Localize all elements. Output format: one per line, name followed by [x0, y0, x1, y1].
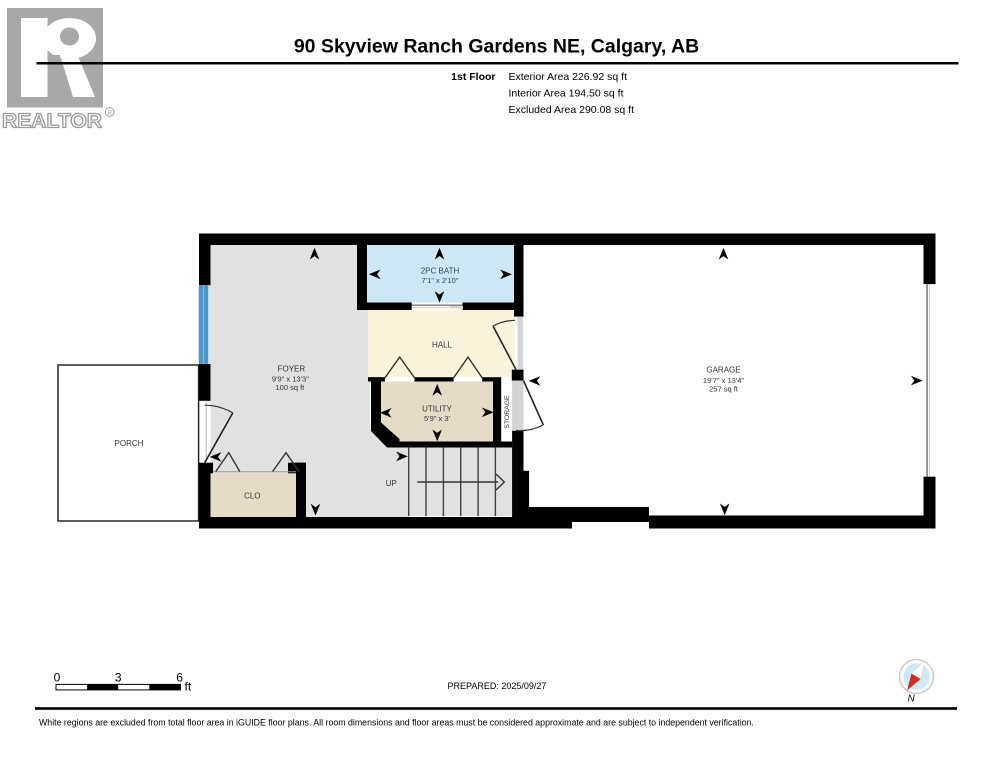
svg-text:PORCH: PORCH: [115, 439, 144, 448]
svg-text:2PC BATH: 2PC BATH: [421, 266, 460, 275]
svg-text:100 sq ft: 100 sq ft: [276, 383, 306, 392]
svg-text:6: 6: [176, 671, 183, 685]
svg-text:HALL: HALL: [432, 341, 453, 350]
svg-text:ft: ft: [185, 680, 192, 694]
svg-text:0: 0: [54, 671, 61, 685]
svg-text:R: R: [107, 110, 112, 117]
svg-text:CLO: CLO: [244, 492, 260, 501]
svg-text:GARAGE: GARAGE: [706, 366, 740, 375]
svg-text:257 sq ft: 257 sq ft: [709, 385, 739, 394]
svg-text:Exterior Area 226.92 sq ft: Exterior Area 226.92 sq ft: [509, 71, 628, 83]
svg-text:UTILITY: UTILITY: [422, 404, 452, 413]
svg-text:STORAGE: STORAGE: [504, 395, 511, 429]
svg-text:UP: UP: [386, 479, 397, 488]
svg-text:5'9" x 3': 5'9" x 3': [424, 414, 451, 423]
svg-text:9'9" x 13'3": 9'9" x 13'3": [272, 374, 309, 383]
svg-text:Interior Area 194.50 sq ft: Interior Area 194.50 sq ft: [509, 88, 624, 100]
svg-text:FOYER: FOYER: [278, 364, 306, 373]
svg-text:3: 3: [115, 671, 122, 685]
svg-text:N: N: [908, 694, 916, 705]
svg-text:90 Skyview Ranch Gardens NE, C: 90 Skyview Ranch Gardens NE, Calgary, AB: [294, 36, 699, 58]
svg-text:White regions are excluded fro: White regions are excluded from total fl…: [39, 718, 754, 728]
svg-text:7'1" x 2'10": 7'1" x 2'10": [422, 276, 459, 285]
svg-text:1st Floor: 1st Floor: [451, 71, 495, 83]
svg-text:REALTOR: REALTOR: [2, 111, 103, 133]
svg-text:PREPARED: 2025/09/27: PREPARED: 2025/09/27: [448, 681, 547, 691]
svg-text:Excluded Area 290.08 sq ft: Excluded Area 290.08 sq ft: [509, 104, 635, 116]
